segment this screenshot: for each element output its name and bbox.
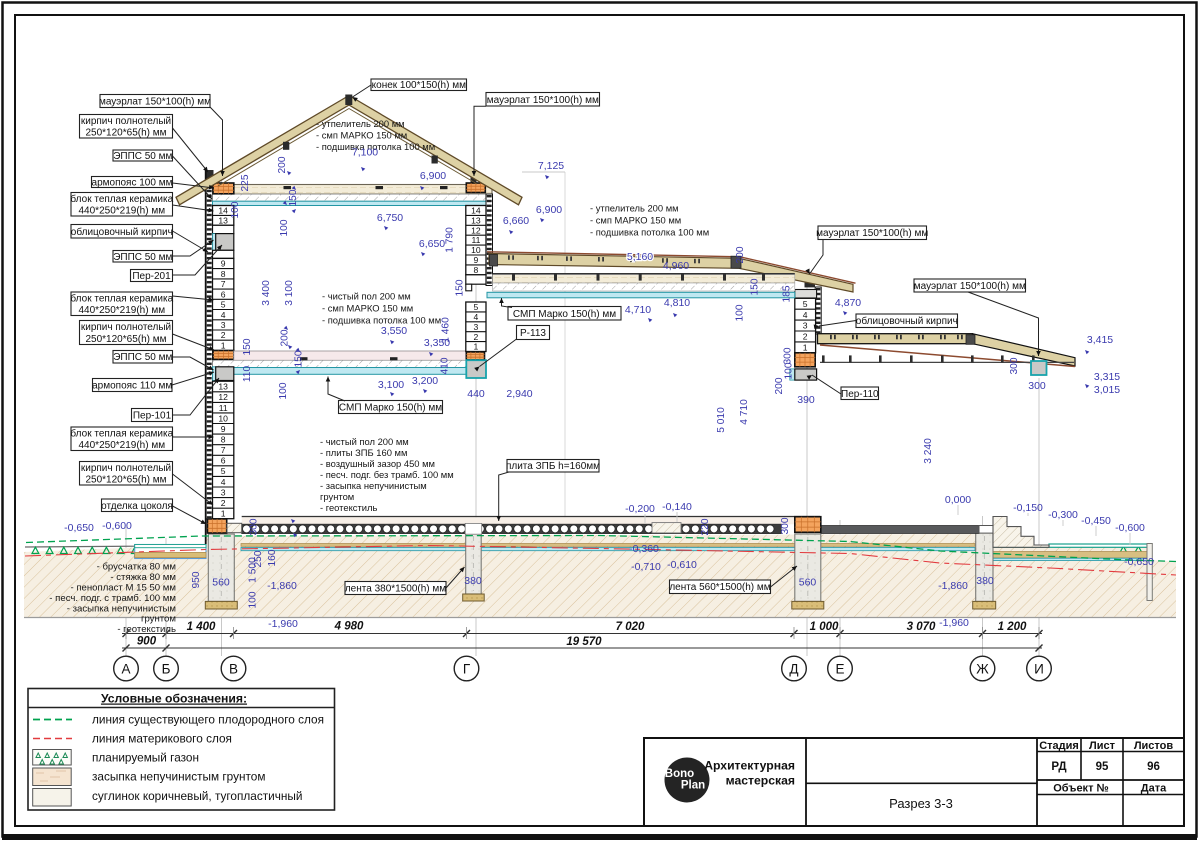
svg-text:6: 6 bbox=[221, 289, 226, 299]
svg-text:5: 5 bbox=[803, 299, 808, 309]
svg-text:8: 8 bbox=[221, 269, 226, 279]
svg-text:950: 950 bbox=[191, 571, 202, 588]
svg-text:-1,960: -1,960 bbox=[268, 618, 298, 630]
svg-text:Разрез 3-3: Разрез 3-3 bbox=[889, 796, 953, 811]
svg-text:12: 12 bbox=[471, 225, 481, 235]
svg-text:-0,150: -0,150 bbox=[1013, 502, 1043, 514]
svg-text:Архитектурная: Архитектурная bbox=[704, 759, 795, 773]
svg-text:мауэрлат 150*100(h) мм: мауэрлат 150*100(h) мм bbox=[99, 97, 211, 108]
svg-text:- стяжка 80 мм: - стяжка 80 мм bbox=[110, 572, 176, 583]
svg-text:Ж: Ж bbox=[976, 661, 989, 676]
svg-text:мауэрлат 150*100(h) мм: мауэрлат 150*100(h) мм bbox=[487, 95, 599, 106]
svg-text:Стадия: Стадия bbox=[1039, 740, 1079, 752]
svg-text:380: 380 bbox=[464, 575, 482, 587]
svg-text:200: 200 bbox=[774, 377, 785, 394]
svg-text:- песч. подг. с трамб. 100 мм: - песч. подг. с трамб. 100 мм bbox=[49, 593, 176, 604]
svg-text:220: 220 bbox=[700, 518, 711, 535]
svg-text:конек 100*150(h) мм: конек 100*150(h) мм bbox=[372, 80, 466, 91]
svg-text:7,125: 7,125 bbox=[538, 160, 564, 172]
svg-text:5: 5 bbox=[474, 302, 479, 312]
svg-text:7: 7 bbox=[221, 445, 226, 455]
svg-text:лента 380*1500(h) мм: лента 380*1500(h) мм bbox=[345, 584, 446, 595]
svg-text:облицовочный кирпич: облицовочный кирпич bbox=[71, 226, 173, 238]
svg-text:4: 4 bbox=[221, 310, 226, 320]
svg-text:3,100: 3,100 bbox=[378, 379, 404, 391]
svg-text:14: 14 bbox=[218, 206, 228, 216]
svg-text:Листов: Листов bbox=[1134, 740, 1174, 752]
svg-text:100: 100 bbox=[248, 591, 259, 608]
svg-text:Условные обозначения:: Условные обозначения: bbox=[101, 692, 247, 706]
svg-text:армопояс 100 мм: армопояс 100 мм bbox=[92, 178, 173, 189]
svg-text:1: 1 bbox=[803, 343, 808, 353]
svg-text:РД: РД bbox=[1051, 761, 1066, 773]
svg-text:ЭППС 50 мм: ЭППС 50 мм bbox=[113, 352, 172, 363]
svg-text:100: 100 bbox=[279, 219, 290, 236]
svg-text:- чистый пол 200 мм: - чистый пол 200 мм bbox=[320, 436, 409, 447]
svg-text:1 200: 1 200 bbox=[998, 621, 1027, 633]
svg-text:кирпич полнотелый: кирпич полнотелый bbox=[81, 322, 171, 333]
svg-text:1 460: 1 460 bbox=[441, 317, 452, 343]
svg-text:планируемый газон: планируемый газон bbox=[92, 751, 199, 765]
svg-text:2: 2 bbox=[474, 332, 479, 342]
svg-text:3 240: 3 240 bbox=[923, 438, 934, 464]
svg-text:2: 2 bbox=[221, 498, 226, 508]
svg-text:-0,600: -0,600 bbox=[1115, 522, 1145, 534]
svg-text:Б: Б bbox=[162, 661, 171, 676]
svg-text:6,900: 6,900 bbox=[420, 170, 446, 182]
svg-text:5 010: 5 010 bbox=[716, 407, 727, 433]
svg-text:СМП Марко 150(h) мм: СМП Марко 150(h) мм bbox=[339, 403, 442, 414]
svg-text:1 000: 1 000 bbox=[810, 621, 839, 633]
svg-text:- утпелитель 200 мм: - утпелитель 200 мм bbox=[590, 202, 679, 213]
svg-text:12: 12 bbox=[218, 392, 228, 402]
svg-text:- плиты ЗПБ 160 мм: - плиты ЗПБ 160 мм bbox=[320, 447, 407, 458]
svg-text:засыпка непучинистым грунтом: засыпка непучинистым грунтом bbox=[92, 770, 265, 784]
svg-text:300: 300 bbox=[1009, 357, 1020, 374]
svg-text:4,960: 4,960 bbox=[663, 260, 689, 272]
svg-text:- подшивка потолка 100 мм: - подшивка потолка 100 мм bbox=[322, 314, 441, 325]
svg-text:150: 150 bbox=[288, 189, 299, 206]
svg-text:мастерская: мастерская bbox=[726, 774, 795, 788]
svg-text:3 100: 3 100 bbox=[284, 280, 295, 306]
svg-text:7: 7 bbox=[221, 279, 226, 289]
svg-text:100: 100 bbox=[784, 362, 795, 379]
svg-text:150: 150 bbox=[294, 350, 305, 367]
svg-text:Plan: Plan bbox=[681, 780, 705, 792]
svg-text:-0,200: -0,200 bbox=[625, 503, 655, 515]
svg-text:100: 100 bbox=[230, 201, 241, 218]
svg-text:11: 11 bbox=[471, 235, 480, 245]
svg-text:Пер-110: Пер-110 bbox=[841, 389, 879, 400]
svg-text:440*250*219(h) мм: 440*250*219(h) мм bbox=[79, 206, 166, 217]
svg-text:- песч. подг. без трамб. 100 м: - песч. подг. без трамб. 100 мм bbox=[320, 469, 454, 480]
svg-text:3,550: 3,550 bbox=[381, 325, 407, 337]
svg-text:300: 300 bbox=[1028, 380, 1046, 392]
svg-text:-0,710: -0,710 bbox=[631, 561, 661, 573]
svg-text:плита ЗПБ h=160мм: плита ЗПБ h=160мм bbox=[506, 461, 600, 472]
svg-text:В: В bbox=[229, 661, 238, 676]
svg-text:250*120*65(h) мм: 250*120*65(h) мм bbox=[85, 334, 166, 345]
svg-text:4,870: 4,870 bbox=[835, 297, 861, 309]
svg-text:3,015: 3,015 bbox=[1094, 384, 1120, 396]
svg-text:3,200: 3,200 bbox=[412, 375, 438, 387]
svg-text:6,750: 6,750 bbox=[377, 212, 403, 224]
svg-text:Д: Д bbox=[789, 661, 798, 676]
svg-text:9: 9 bbox=[221, 424, 226, 434]
svg-text:300: 300 bbox=[783, 347, 794, 364]
svg-text:1 400: 1 400 bbox=[187, 621, 216, 633]
svg-text:3: 3 bbox=[803, 321, 808, 331]
svg-text:мауэрлат 150*100(h) мм: мауэрлат 150*100(h) мм bbox=[816, 228, 928, 239]
svg-text:- смп МАРКО 150 мм: - смп МАРКО 150 мм bbox=[316, 129, 407, 140]
svg-text:410: 410 bbox=[440, 357, 451, 374]
svg-text:560: 560 bbox=[212, 577, 230, 589]
svg-text:суглинок коричневый, тугопласт: суглинок коричневый, тугопластичный bbox=[92, 789, 302, 803]
svg-text:14: 14 bbox=[471, 206, 481, 216]
svg-text:200: 200 bbox=[280, 329, 291, 346]
svg-text:95: 95 bbox=[1096, 761, 1109, 773]
svg-text:900: 900 bbox=[137, 636, 157, 648]
svg-text:3,315: 3,315 bbox=[1094, 371, 1120, 383]
svg-text:185: 185 bbox=[782, 285, 793, 302]
svg-text:- чистый пол 200 мм: - чистый пол 200 мм bbox=[322, 290, 411, 301]
svg-text:7 020: 7 020 bbox=[616, 621, 645, 633]
svg-text:грунтом: грунтом bbox=[320, 491, 354, 502]
svg-text:1: 1 bbox=[474, 342, 479, 352]
svg-text:10: 10 bbox=[218, 413, 228, 423]
svg-text:блок теплая керамика: блок теплая керамика bbox=[70, 293, 173, 305]
svg-text:мауэрлат 150*100(h) мм: мауэрлат 150*100(h) мм bbox=[914, 281, 1026, 292]
svg-text:6,660: 6,660 bbox=[503, 215, 529, 227]
svg-text:- брусчатка 80 мм: - брусчатка 80 мм bbox=[97, 561, 176, 572]
svg-text:ЭППС 50 мм: ЭППС 50 мм bbox=[113, 151, 172, 162]
svg-text:Г: Г bbox=[463, 661, 471, 676]
svg-text:440: 440 bbox=[467, 388, 485, 400]
svg-text:13: 13 bbox=[471, 215, 481, 225]
svg-text:армопояс 110 мм: армопояс 110 мм bbox=[92, 381, 172, 392]
svg-text:-0,600: -0,600 bbox=[102, 520, 132, 532]
svg-text:100: 100 bbox=[278, 382, 289, 399]
svg-text:11: 11 bbox=[219, 403, 228, 413]
svg-text:2: 2 bbox=[803, 332, 808, 342]
svg-text:3: 3 bbox=[474, 322, 479, 332]
svg-text:-0,650: -0,650 bbox=[1124, 556, 1154, 568]
svg-text:13: 13 bbox=[218, 215, 228, 225]
svg-text:Р-113: Р-113 bbox=[520, 328, 546, 339]
svg-text:200: 200 bbox=[277, 156, 288, 173]
svg-text:Пер-101: Пер-101 bbox=[133, 411, 172, 422]
svg-text:блок теплая керамика: блок теплая керамика bbox=[70, 428, 173, 440]
svg-text:- пенопласт М 15 50 мм: - пенопласт М 15 50 мм bbox=[70, 582, 176, 593]
svg-text:560: 560 bbox=[799, 577, 817, 589]
svg-text:И: И bbox=[1034, 661, 1044, 676]
svg-text:6,650: 6,650 bbox=[419, 238, 445, 250]
svg-text:- смп МАРКО 150 мм: - смп МАРКО 150 мм bbox=[590, 214, 681, 225]
svg-text:150: 150 bbox=[750, 278, 761, 295]
svg-text:Дата: Дата bbox=[1141, 783, 1167, 795]
svg-text:2: 2 bbox=[221, 330, 226, 340]
svg-text:3: 3 bbox=[221, 320, 226, 330]
svg-text:3 400: 3 400 bbox=[261, 280, 272, 306]
svg-text:4: 4 bbox=[474, 312, 479, 322]
svg-text:линия существующего плодородно: линия существующего плодородного слоя bbox=[92, 713, 324, 727]
svg-text:Лист: Лист bbox=[1089, 740, 1116, 752]
svg-text:0,000: 0,000 bbox=[945, 494, 971, 506]
svg-text:4: 4 bbox=[221, 477, 226, 487]
svg-text:-0,450: -0,450 bbox=[1081, 515, 1111, 527]
svg-text:100: 100 bbox=[735, 304, 746, 321]
svg-text:-0,360: -0,360 bbox=[629, 543, 659, 555]
svg-text:кирпич полнотелый: кирпич полнотелый bbox=[81, 116, 171, 127]
svg-text:3 070: 3 070 bbox=[907, 621, 936, 633]
svg-text:250*120*65(h) мм: 250*120*65(h) мм bbox=[85, 475, 166, 486]
svg-text:Пер-201: Пер-201 bbox=[132, 271, 171, 282]
svg-text:- смп МАРКО 150 мм: - смп МАРКО 150 мм bbox=[322, 302, 413, 313]
svg-text:1: 1 bbox=[221, 341, 226, 351]
svg-text:4,710: 4,710 bbox=[625, 304, 651, 316]
svg-text:1: 1 bbox=[221, 509, 226, 519]
svg-text:2,940: 2,940 bbox=[506, 388, 532, 400]
svg-text:1 790: 1 790 bbox=[445, 227, 456, 253]
svg-text:-1,860: -1,860 bbox=[267, 580, 297, 592]
svg-text:150: 150 bbox=[455, 279, 466, 296]
svg-text:-0,300: -0,300 bbox=[1048, 509, 1078, 521]
svg-text:СМП Марко 150(h) мм: СМП Марко 150(h) мм bbox=[513, 309, 616, 320]
svg-text:200: 200 bbox=[735, 246, 746, 263]
svg-text:4 710: 4 710 bbox=[739, 399, 750, 425]
svg-text:8: 8 bbox=[474, 265, 479, 275]
svg-text:4 980: 4 980 bbox=[334, 621, 364, 633]
svg-text:6,900: 6,900 bbox=[536, 204, 562, 216]
svg-text:8: 8 bbox=[221, 435, 226, 445]
svg-text:7,100: 7,100 bbox=[352, 147, 378, 159]
svg-text:А: А bbox=[121, 661, 130, 676]
svg-text:13: 13 bbox=[218, 382, 228, 392]
svg-text:3: 3 bbox=[221, 487, 226, 497]
svg-text:300: 300 bbox=[249, 518, 260, 535]
svg-text:440*250*219(h) мм: 440*250*219(h) мм bbox=[79, 440, 166, 451]
svg-text:-0,650: -0,650 bbox=[64, 522, 94, 534]
svg-text:300: 300 bbox=[780, 517, 791, 534]
svg-text:380: 380 bbox=[976, 575, 994, 587]
svg-text:225: 225 bbox=[240, 174, 251, 191]
svg-text:кирпич полнотелый: кирпич полнотелый bbox=[81, 463, 171, 474]
svg-text:блок теплая керамика: блок теплая керамика bbox=[70, 193, 173, 205]
svg-text:-1,960: -1,960 bbox=[939, 617, 969, 629]
svg-text:19 570: 19 570 bbox=[566, 636, 602, 648]
svg-text:440*250*219(h) мм: 440*250*219(h) мм bbox=[79, 305, 166, 316]
svg-text:10: 10 bbox=[471, 245, 481, 255]
svg-text:линия материкового слоя: линия материкового слоя bbox=[92, 732, 232, 746]
svg-text:отделка цоколя: отделка цоколя bbox=[101, 501, 173, 512]
svg-text:5: 5 bbox=[221, 300, 226, 310]
svg-text:390: 390 bbox=[797, 394, 815, 406]
svg-text:3,415: 3,415 bbox=[1087, 334, 1113, 346]
svg-text:облицовочный кирпич: облицовочный кирпич bbox=[856, 315, 958, 327]
svg-text:- утпелитель 200 мм: - утпелитель 200 мм bbox=[316, 118, 405, 129]
svg-text:-1,860: -1,860 bbox=[938, 580, 968, 592]
svg-text:5,160: 5,160 bbox=[627, 251, 653, 263]
svg-text:Е: Е bbox=[835, 661, 844, 676]
svg-text:9: 9 bbox=[474, 255, 479, 265]
svg-text:-0,140: -0,140 bbox=[662, 501, 692, 513]
svg-text:- геотекстиль: - геотекстиль bbox=[320, 502, 377, 513]
svg-text:4: 4 bbox=[803, 310, 808, 320]
svg-text:ЭППС 50 мм: ЭППС 50 мм bbox=[113, 252, 172, 263]
svg-text:- подшивка потолка 100 мм: - подшивка потолка 100 мм bbox=[590, 226, 709, 237]
svg-text:- воздушный зазор 450 мм: - воздушный зазор 450 мм bbox=[320, 458, 435, 469]
svg-text:5: 5 bbox=[221, 466, 226, 476]
svg-text:250*120*65(h) мм: 250*120*65(h) мм bbox=[85, 128, 166, 139]
svg-text:110: 110 bbox=[242, 366, 253, 383]
svg-text:лента 560*1500(h) мм: лента 560*1500(h) мм bbox=[669, 582, 770, 593]
svg-text:Объект №: Объект № bbox=[1053, 783, 1109, 795]
svg-text:Bono: Bono bbox=[665, 768, 694, 780]
svg-text:4,810: 4,810 bbox=[664, 297, 690, 309]
svg-text:6: 6 bbox=[221, 456, 226, 466]
svg-text:160: 160 bbox=[267, 549, 278, 566]
svg-text:9: 9 bbox=[221, 259, 226, 269]
svg-text:150: 150 bbox=[242, 338, 253, 355]
svg-text:-0,610: -0,610 bbox=[667, 559, 697, 571]
svg-text:250: 250 bbox=[253, 550, 264, 567]
svg-text:- засыпка непучинистым: - засыпка непучинистым bbox=[320, 480, 427, 491]
svg-text:96: 96 bbox=[1147, 761, 1160, 773]
